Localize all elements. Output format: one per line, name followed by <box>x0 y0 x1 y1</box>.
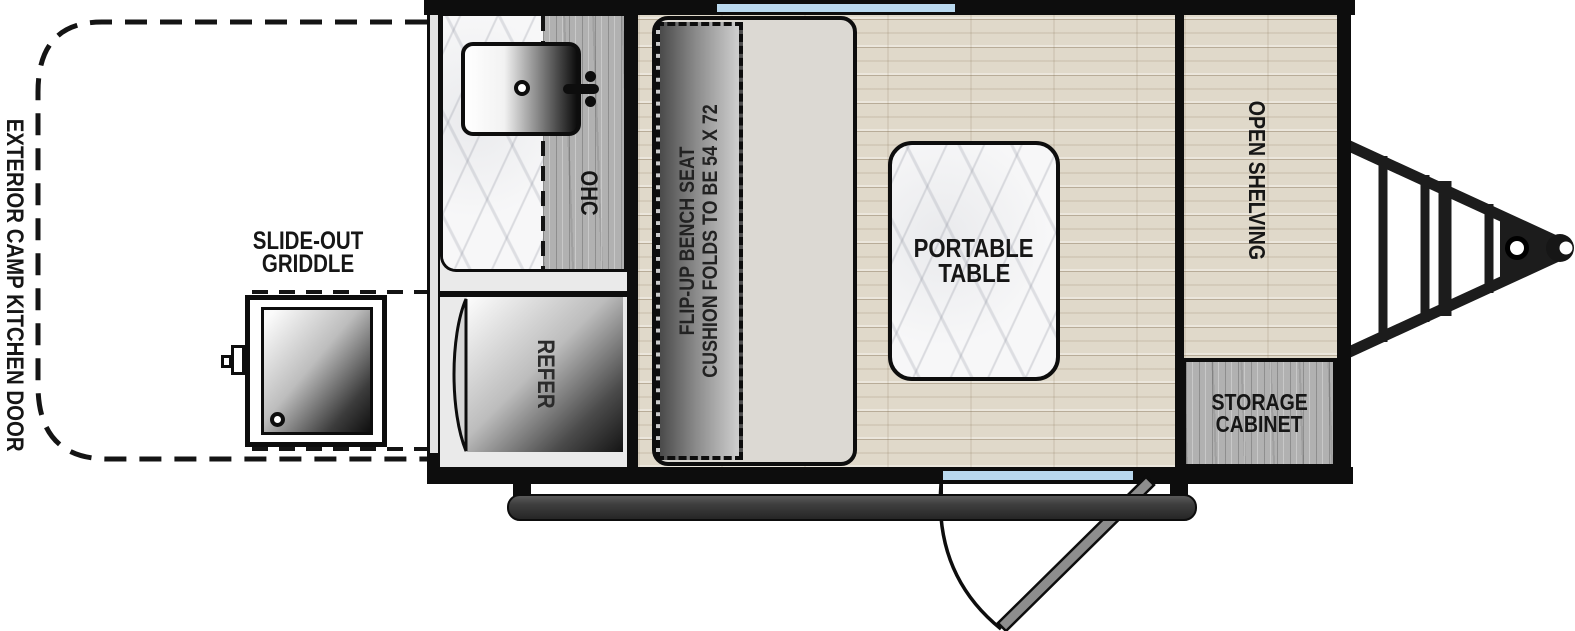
kitchen-main-room-wall <box>627 15 638 467</box>
portable-table-label-line2: TABLE <box>938 261 1010 286</box>
entry-door-swing <box>900 455 1200 631</box>
sink-drain <box>514 80 530 96</box>
griddle-knob <box>270 412 285 427</box>
bench-cushion-label-line1: FLIP-UP BENCH SEAT <box>676 147 699 336</box>
faucet-handle-bottom <box>585 96 596 107</box>
portable-table: PORTABLE TABLE <box>888 141 1060 381</box>
griddle-handle <box>231 345 245 375</box>
coupler-ring <box>1508 239 1527 258</box>
storage-cabinet-label-line1: STORAGE <box>1211 391 1307 413</box>
bench-cushion-label: FLIP-UP BENCH SEAT CUSHION FOLDS TO BE 5… <box>676 45 722 436</box>
faucet-spout <box>563 84 599 94</box>
refrigerator-door-front <box>441 290 477 460</box>
slide-out-griddle-label-line2: GRIDDLE <box>262 250 354 278</box>
bottom-wall <box>427 467 1353 484</box>
top-window <box>715 2 957 14</box>
exterior-camp-kitchen-door-label: EXTERIOR CAMP KITCHEN DOOR <box>0 119 34 400</box>
faucet-handle-top <box>585 71 596 82</box>
floorplan-canvas: EXTERIOR CAMP KITCHEN DOOR SLIDE-OUT GRI… <box>0 0 1575 631</box>
rear-wall-door-opening <box>427 15 440 453</box>
storage-cabinet: STORAGE CABINET <box>1182 358 1337 468</box>
bench-cushion-label-line2: CUSHION FOLDS TO BE 54 X 72 <box>699 104 722 377</box>
front-wall <box>1337 0 1351 484</box>
griddle-handle-tab <box>221 355 232 368</box>
storage-cabinet-label-line2: CABINET <box>1216 413 1303 435</box>
refrigerator-label: REFER <box>531 323 559 425</box>
overhead-cabinet-label: OHC <box>574 142 602 244</box>
entry-step-bar <box>507 494 1197 521</box>
trailer-tongue-hitch <box>1345 144 1574 354</box>
open-shelving-label: OPEN SHELVING <box>1243 101 1271 246</box>
slide-out-griddle-label: SLIDE-OUT GRIDDLE <box>218 230 398 276</box>
